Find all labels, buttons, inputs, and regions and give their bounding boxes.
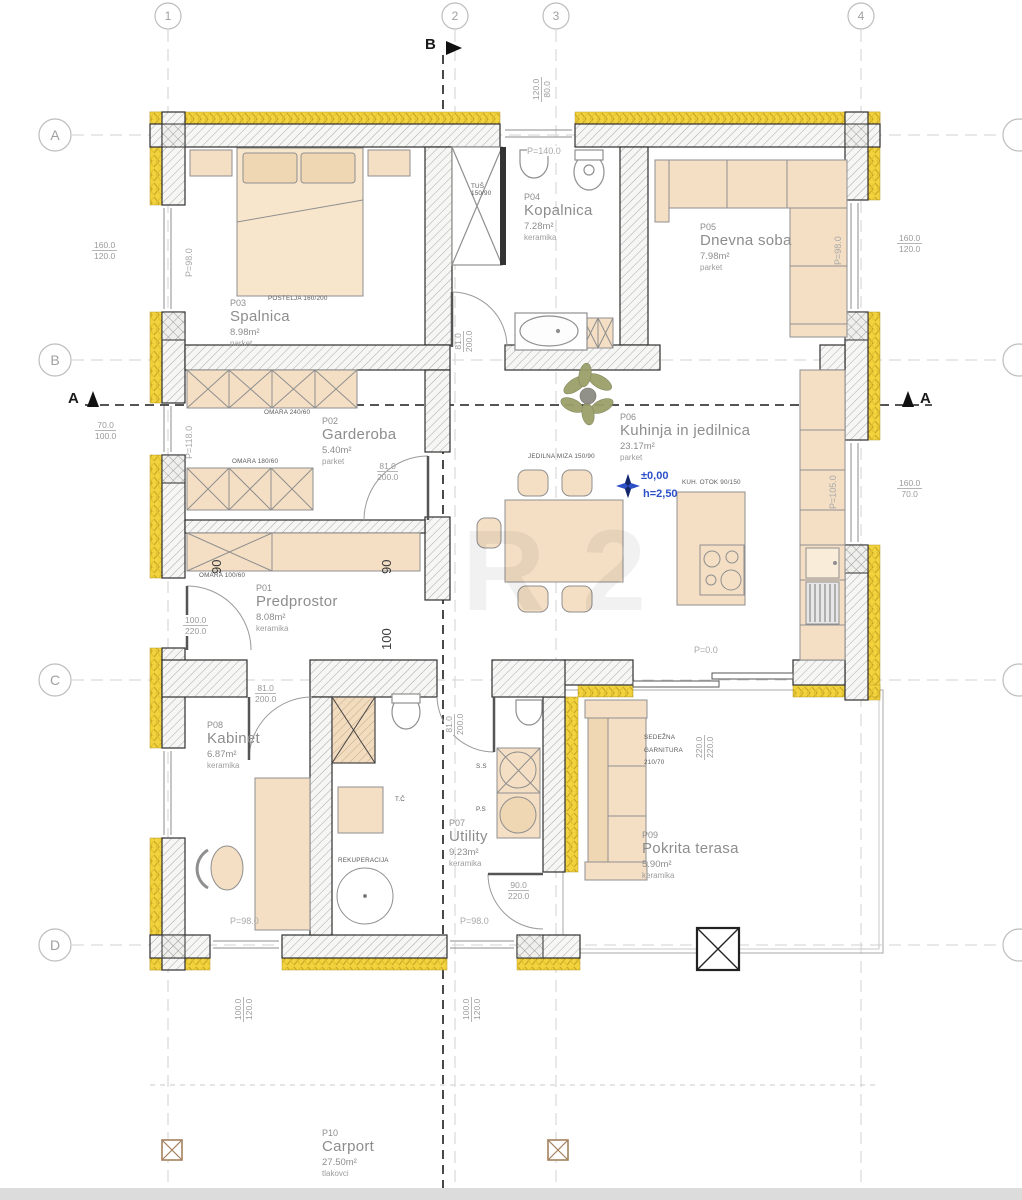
room-label-p05: P05 Dnevna soba 7.98m² parket — [700, 222, 792, 272]
wardrobe-180-label: OMARA 180/60 — [232, 458, 278, 465]
wc-tank — [575, 150, 603, 160]
kitchen-island-label: KUH. OTOK 90/150 — [682, 479, 741, 486]
room-label-p07: P07 Utility 9.23m² keramika — [449, 818, 488, 868]
dim-door-utility: 81.0200.0 — [444, 714, 465, 735]
parapet-garderoba: P=118.0 — [184, 426, 194, 459]
heat-pump-label: T.Č — [395, 796, 405, 803]
sofa-armrest — [655, 160, 669, 222]
floorplan-page: 1 2 3 4 A B C D — [0, 0, 1022, 1200]
section-b-label: B — [425, 36, 436, 53]
parapet-spalnica: P=98.0 — [184, 248, 194, 277]
room-label-p10: P10 Carport 27.50m² tlakovci — [322, 1128, 374, 1178]
section-a-arrow-right — [902, 391, 914, 407]
dim-terrace: 220.0220.0 — [694, 735, 715, 760]
room-label-p08: P08 Kabinet 6.87m² keramika — [207, 720, 260, 770]
pillow-left — [243, 153, 297, 183]
dim-door-terasa: 90.0220.0 — [508, 880, 529, 901]
nightstand-left — [190, 150, 232, 176]
wardrobe-100-label: OMARA 100/60 — [199, 572, 245, 579]
dim-window-garderoba: 70.0100.0 — [95, 420, 116, 441]
parapet-kabinet: P=98.0 — [230, 916, 259, 926]
columns — [162, 928, 739, 1160]
level-marker-icon — [616, 474, 640, 498]
section-a-arrow-left — [87, 391, 99, 407]
grid-row-a: A — [50, 127, 60, 143]
dim-pass-100: 100 — [379, 628, 394, 650]
grid-col-3: 3 — [553, 9, 560, 23]
watermark-letter: 2 — [582, 505, 646, 637]
heat-pump — [338, 787, 383, 833]
room-label-p02: P02 Garderoba 5.40m² parket — [322, 416, 396, 466]
chair — [518, 470, 548, 496]
wardrobe-240-label: OMARA 240/60 — [264, 409, 310, 416]
dim-window-kabinet: 100.0120.0 — [233, 997, 254, 1022]
desk-chair — [211, 846, 243, 890]
terrace-sofa-label: SEDEŽNA GARNITURA 210/70 — [644, 732, 683, 770]
sliding-door — [633, 673, 793, 687]
ceiling-height: h=2,50 — [643, 488, 678, 500]
section-a-label-right: A — [920, 390, 931, 407]
basin — [520, 316, 578, 346]
dim-window-spalnica: 160.0120.0 — [92, 240, 117, 261]
dryer-label: S.S — [476, 763, 487, 770]
sofa-top — [668, 160, 847, 208]
dim-window-dnevna: 160.0120.0 — [897, 233, 922, 254]
dim-door-entry: 100.0220.0 — [183, 615, 208, 636]
room-label-p06: P06 Kuhinja in jedilnica 23.17m² parket — [620, 412, 750, 462]
dim-door-kabinet: 81.0200.0 — [255, 683, 276, 704]
kitchen-island — [677, 492, 745, 605]
wc-utility-tank — [392, 694, 420, 703]
parapet-dnevna: P=98.0 — [833, 236, 843, 265]
section-a-label-left: A — [68, 390, 79, 407]
level-value: ±0,00 — [641, 470, 668, 482]
nightstand-right — [368, 150, 410, 176]
pillow-right — [301, 153, 355, 183]
grid-col-1: 1 — [165, 9, 172, 23]
dining-table-label: JEDILNA MIZA 150/90 — [528, 453, 595, 460]
dim-door-garderoba: 81.0200.0 — [377, 461, 398, 482]
section-b-arrow — [446, 41, 462, 55]
watermark-letter: R — [462, 505, 545, 637]
bottom-road-band — [0, 1188, 1022, 1200]
chair — [562, 470, 592, 496]
dim-window-top: 120.080.0 — [531, 77, 552, 102]
grid-row-b: B — [50, 352, 59, 368]
bed-label: POSTELJA 160/200 — [268, 295, 328, 302]
recuperation-label: REKUPERACIJA — [338, 857, 389, 864]
parapet-kopalnica: P=140.0 — [527, 146, 561, 156]
dim-pass-90-right: 90 — [379, 560, 394, 574]
dim-door-kopalnica: 81.0200.0 — [453, 331, 474, 352]
parapet-kuhinja: P=105.0 — [828, 475, 838, 509]
room-label-p09: P09 Pokrita terasa 5.90m² keramika — [642, 830, 739, 880]
grid-row-c: C — [50, 672, 60, 688]
dishwasher — [806, 582, 839, 624]
dim-window-kuhinja: 160.070.0 — [897, 478, 922, 499]
parapet-utility: P=98.0 — [460, 916, 489, 926]
washer-label: P.S — [476, 806, 486, 813]
grid-row-d: D — [50, 937, 60, 953]
sofa-armrest — [790, 324, 847, 337]
dim-window-utility: 100.0120.0 — [461, 997, 482, 1022]
shower-label: TUŠ 150/90 — [471, 183, 491, 197]
floor-level-terasa: P=0.0 — [694, 645, 718, 655]
sink-utility — [516, 700, 542, 725]
plant-icon — [559, 362, 616, 426]
room-label-p03: P03 Spalnica 8.98m² parket — [230, 298, 290, 348]
grid-col-2: 2 — [452, 9, 459, 23]
desk — [255, 778, 310, 930]
room-label-p01: P01 Predprostor 8.08m² keramika — [256, 583, 338, 633]
grid-col-4: 4 — [858, 9, 865, 23]
room-label-p04: P04 Kopalnica 7.28m² keramika — [524, 192, 593, 242]
